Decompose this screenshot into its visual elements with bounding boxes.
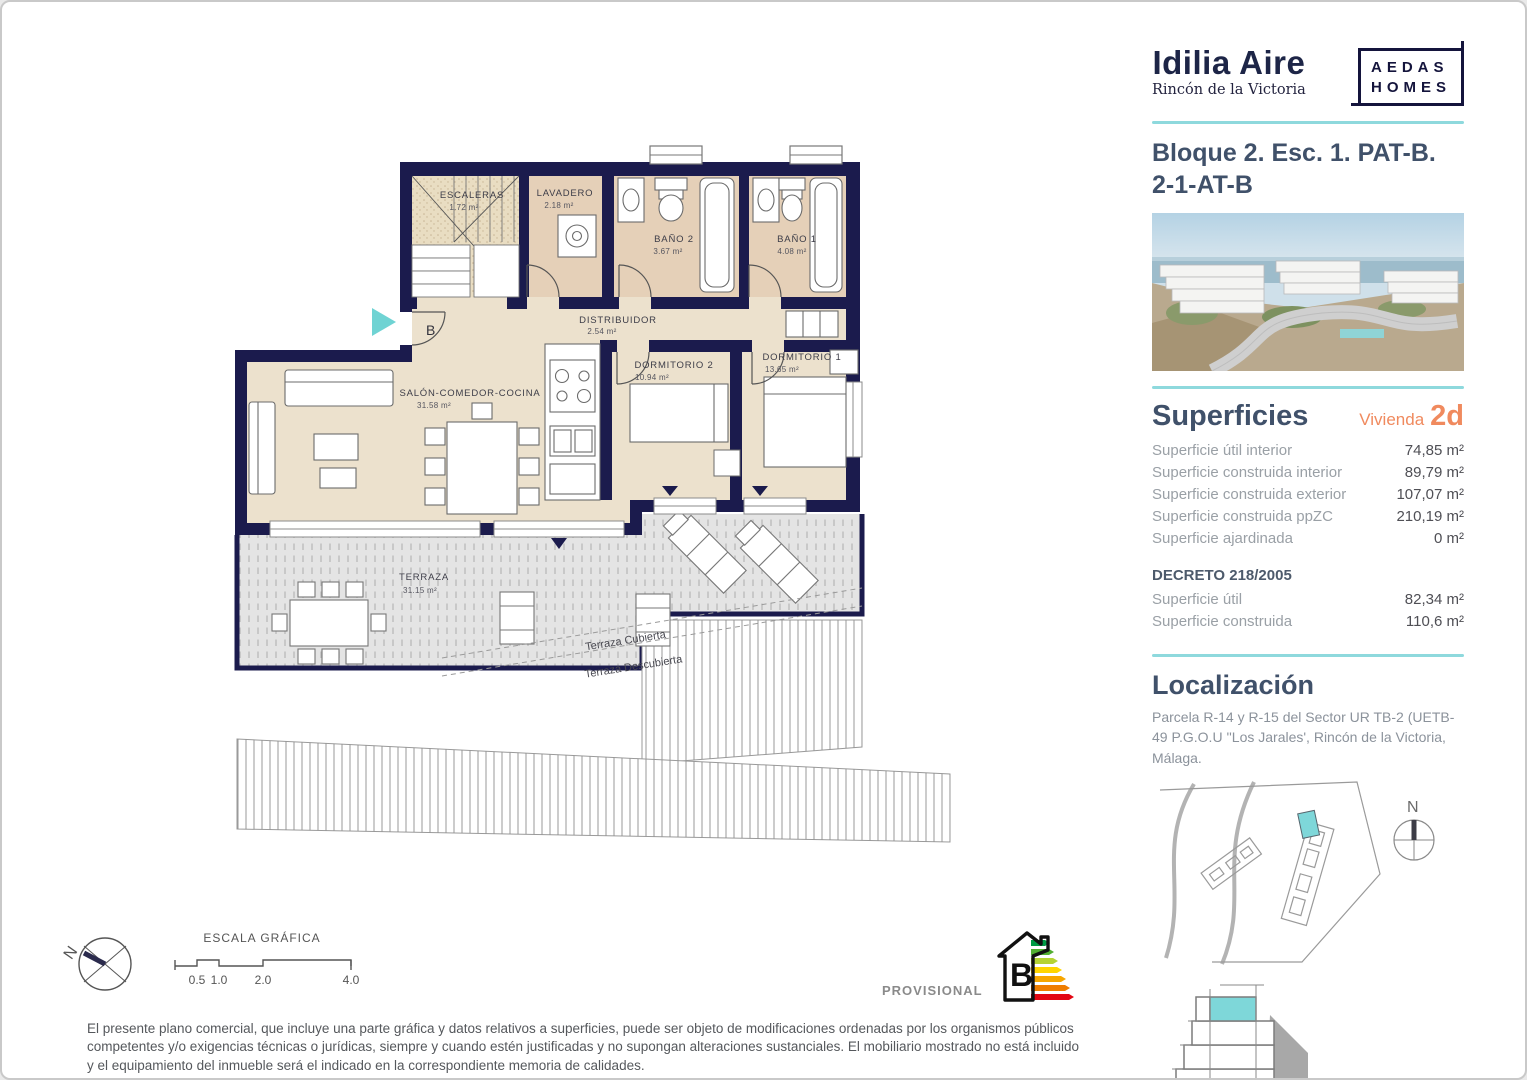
room-area-bano2: 3.67 m²: [653, 247, 682, 256]
energy-bars: [1031, 940, 1074, 1000]
room-label-lavadero: LAVADERO: [537, 188, 594, 199]
room-area-distribuidor: 2.54 m²: [587, 327, 616, 336]
row-label: Superficie ajardinada: [1152, 530, 1293, 547]
row-value: 107,07 m²: [1396, 486, 1464, 503]
divider: [1152, 654, 1464, 657]
table-row: Superficie construida ppZC 210,19 m²: [1152, 505, 1464, 527]
row-label: Superficie construida exterior: [1152, 486, 1346, 503]
legal-disclaimer: El presente plano comercial, que incluye…: [87, 1020, 1087, 1076]
table-row: Superficie construida 110,6 m²: [1152, 610, 1464, 632]
logo-line-1: AEDAS: [1371, 58, 1451, 78]
row-label: Superficie útil: [1152, 591, 1242, 608]
provisional-label: PROVISIONAL: [882, 983, 983, 1006]
brand-header: Idilia Aire Rincón de la Victoria AEDAS …: [1152, 46, 1464, 106]
room-area-salon: 31.58 m²: [417, 401, 451, 410]
table-row: Superficie útil 82,34 m²: [1152, 588, 1464, 610]
logo-line-2: HOMES: [1371, 78, 1451, 98]
vivienda-label: Vivienda: [1359, 410, 1424, 429]
scale-bar: [175, 960, 351, 966]
room-label-bano1: BAÑO 1: [777, 234, 817, 245]
room-label-distribuidor: DISTRIBUIDOR: [579, 315, 657, 326]
unit-title-line2: 2-1-AT-B: [1152, 169, 1464, 201]
room-label-terraza: TERRAZA: [399, 572, 449, 583]
room-area-escaleras: 1.72 m²: [449, 203, 478, 212]
energy-rating-icon: B: [993, 924, 1085, 1006]
table-row: Superficie construida interior 89,79 m²: [1152, 461, 1464, 483]
floor-plan: B ESCALERAS 1.72 m² LAVADERO 2.18 m² BAÑ…: [2, 2, 1102, 902]
site-plan: N: [1152, 778, 1464, 971]
vivienda-code: 2d: [1430, 400, 1464, 432]
scale-tick-2: 2.0: [255, 973, 272, 987]
row-value: 89,79 m²: [1405, 464, 1464, 481]
room-area-terraza: 31.15 m²: [403, 586, 437, 595]
scale-tick-0: 0.5: [189, 973, 206, 987]
energy-label-block: PROVISIONAL B: [882, 924, 1085, 1006]
building-section: [1152, 977, 1352, 1080]
superficies-table: Superficie útil interior 74,85 m² Superf…: [1152, 439, 1464, 549]
room-area-lavadero: 2.18 m²: [544, 201, 573, 210]
divider: [1152, 386, 1464, 389]
svg-text:N: N: [61, 943, 82, 962]
entrance-arrow-icon: [372, 308, 396, 336]
table-row: Superficie construida exterior 107,07 m²: [1152, 483, 1464, 505]
north-label: N: [1407, 799, 1419, 816]
highlighted-floor: [1210, 997, 1256, 1021]
unit-title: Bloque 2. Esc. 1. PAT-B. 2-1-AT-B: [1152, 137, 1464, 201]
energy-rating-letter: B: [1010, 957, 1033, 993]
highlighted-unit: [1298, 810, 1320, 838]
row-label: Superficie construida ppZC: [1152, 508, 1333, 525]
table-row: Superficie ajardinada 0 m²: [1152, 527, 1464, 549]
scale-title: ESCALA GRÁFICA: [203, 930, 320, 945]
room-label-salon: SALÓN-COMEDOR-COCINA: [399, 388, 540, 399]
room-area-dormitorio2: 10.94 m²: [635, 373, 669, 382]
row-value: 0 m²: [1434, 530, 1464, 547]
divider: [1152, 121, 1464, 124]
entrance-label: B: [426, 322, 435, 338]
room-area-dormitorio1: 13.65 m²: [765, 365, 799, 374]
scale-tick-1: 1.0: [211, 973, 228, 987]
table-row: Superficie útil interior 74,85 m²: [1152, 439, 1464, 461]
project-photo: [1152, 213, 1464, 371]
row-label: Superficie construida: [1152, 613, 1292, 630]
aedas-homes-logo: AEDAS HOMES: [1358, 48, 1464, 106]
localizacion-title: Localización: [1152, 670, 1464, 701]
row-value: 74,85 m²: [1405, 442, 1464, 459]
row-value: 210,19 m²: [1396, 508, 1464, 525]
project-name: Idilia Aire: [1152, 46, 1306, 79]
unit-title-line1: Bloque 2. Esc. 1. PAT-B.: [1152, 137, 1464, 169]
room-label-dormitorio2: DORMITORIO 2: [634, 360, 713, 371]
localizacion-text: Parcela R-14 y R-15 del Sector UR TB-2 (…: [1152, 707, 1464, 768]
row-value: 110,6 m²: [1406, 613, 1464, 630]
room-label-escaleras: ESCALERAS: [440, 190, 504, 201]
room-label-bano2: BAÑO 2: [654, 234, 694, 245]
compass-icon: N: [61, 938, 131, 990]
scale-tick-3: 4.0: [343, 973, 360, 987]
scale-bar-block: N ESCALA GRÁFICA 0.5 1.0 2.0 4.0: [57, 922, 387, 1002]
decreto-table: Superficie útil 82,34 m² Superficie cons…: [1152, 588, 1464, 632]
room-area-bano1: 4.08 m²: [777, 247, 806, 256]
decreto-title: DECRETO 218/2005: [1152, 567, 1464, 584]
sidebar: Idilia Aire Rincón de la Victoria AEDAS …: [1152, 46, 1464, 1080]
superficies-title: Superficies: [1152, 402, 1308, 431]
room-label-dormitorio1: DORMITORIO 1: [762, 352, 841, 363]
row-label: Superficie útil interior: [1152, 442, 1292, 459]
plan-sheet: B ESCALERAS 1.72 m² LAVADERO 2.18 m² BAÑ…: [0, 0, 1527, 1080]
north-compass-icon: N: [1394, 799, 1434, 860]
project-location: Rincón de la Victoria: [1152, 82, 1306, 98]
row-value: 82,34 m²: [1405, 591, 1464, 608]
row-label: Superficie construida interior: [1152, 464, 1342, 481]
kitchen: [545, 344, 600, 500]
